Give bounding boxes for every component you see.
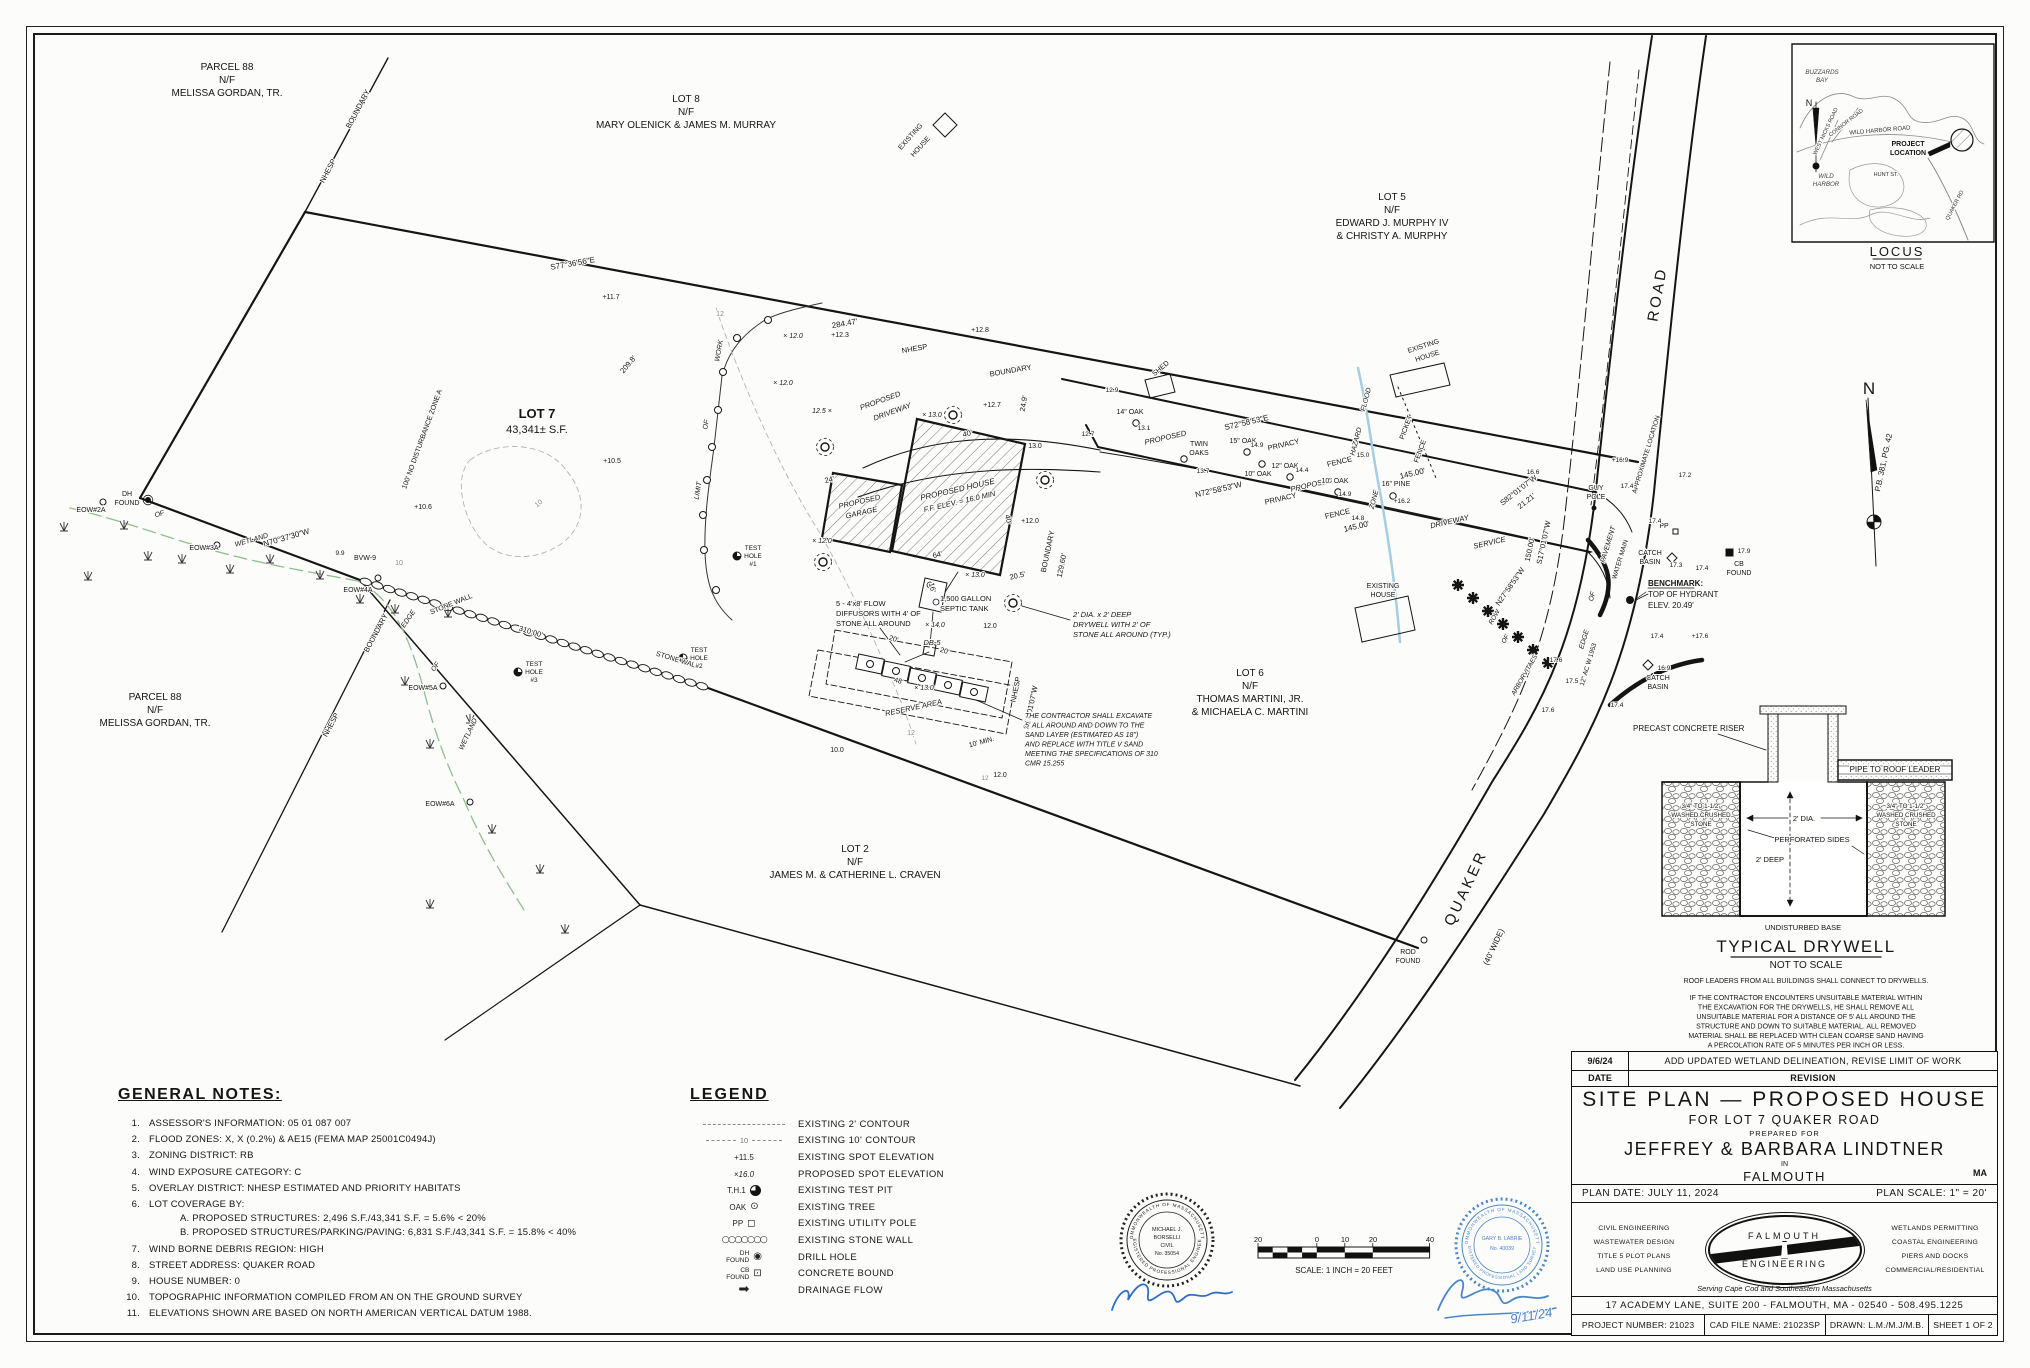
note-text: LOT COVERAGE BY: bbox=[149, 1199, 244, 1210]
plan-label: 14.9 bbox=[1251, 442, 1264, 449]
stone-wall-icon bbox=[417, 595, 430, 605]
plan-line bbox=[1768, 714, 1778, 782]
plan-line bbox=[1273, 1253, 1288, 1259]
sheet-number: SHEET 1 OF 2 bbox=[1929, 1315, 1997, 1335]
plan-label: S17°01'07"W bbox=[1535, 519, 1553, 565]
plan-circle bbox=[704, 477, 711, 484]
plan-circle bbox=[1421, 937, 1427, 943]
note-text: ELEVATIONS SHOWN ARE BASED ON NORTH AMER… bbox=[149, 1308, 532, 1319]
plan-circle bbox=[1009, 599, 1017, 607]
legend-symbol: ×16.0 bbox=[690, 1170, 798, 1179]
arborvitae-icon bbox=[1467, 592, 1479, 604]
plan-label: UNSUITABLE MATERIAL FOR A DISTANCE OF 5'… bbox=[1696, 1014, 1916, 1021]
wetland-grass-icon bbox=[401, 676, 409, 685]
plan-label: BOUNDARY bbox=[989, 362, 1032, 378]
plan-line bbox=[1145, 374, 1175, 398]
plan-circle bbox=[715, 407, 722, 414]
drill-hole-icon: ◉ bbox=[753, 1252, 762, 1262]
plan-label: OF bbox=[702, 419, 711, 431]
plan-label: OF bbox=[154, 510, 166, 520]
services-left-list: CIVIL ENGINEERINGWASTEWATER DESIGNTITLE … bbox=[1578, 1218, 1690, 1281]
legend-label: EXISTING 2' CONTOUR bbox=[798, 1119, 910, 1130]
plan-label: EDGE bbox=[400, 609, 417, 630]
plan-label: N/F bbox=[219, 75, 235, 86]
plan-label: & CHRISTY A. MURPHY bbox=[1337, 231, 1448, 242]
plan-label: STONE bbox=[1895, 821, 1916, 828]
wetland-grass-icon bbox=[84, 571, 92, 580]
note-number: 8. bbox=[118, 1260, 140, 1271]
engineer-seal-icon: COMMONWEALTH OF MASSACHUSETTS REGISTERED… bbox=[0, 0, 1205, 1275]
legend-item: CBFOUND⊡CONCRETE BOUND bbox=[690, 1265, 1120, 1282]
plan-circle bbox=[734, 335, 741, 342]
plan-label: HOUSE bbox=[1371, 592, 1396, 599]
plan-circle bbox=[467, 799, 473, 805]
plan-label: PROJECT bbox=[1891, 141, 1925, 148]
note-number: 10. bbox=[118, 1292, 140, 1303]
legend-item: ➡DRAINAGE FLOW bbox=[690, 1282, 1120, 1299]
plan-label: N/F bbox=[847, 857, 863, 868]
wetland-grass-icon bbox=[561, 924, 569, 933]
plan-label: 43,341± S.F. bbox=[506, 424, 568, 436]
plan-circle bbox=[713, 587, 720, 594]
revision-header-row: DATE REVISION bbox=[1572, 1071, 1997, 1087]
stone-wall-icon bbox=[556, 638, 569, 648]
note-text: B. PROPOSED STRUCTURES/PARKING/PAVING: 6… bbox=[180, 1227, 576, 1238]
drainage-flow-icon: ➡ bbox=[739, 1285, 750, 1295]
plan-label: MATERIAL SHALL BE REPLACED WITH CLEAN CO… bbox=[1688, 1033, 1923, 1040]
plan-label: PARCEL 88 bbox=[201, 62, 254, 73]
legend-item: EXISTING 2' CONTOUR bbox=[690, 1116, 1120, 1133]
plan-label: TYPICAL DRYWELL bbox=[1716, 937, 1895, 956]
plan-label: LOCATION bbox=[1890, 150, 1926, 157]
plan-label: PAVEMENT bbox=[1600, 525, 1618, 564]
plan-label: N/F bbox=[1242, 681, 1258, 692]
plan-label: +12.8 bbox=[971, 327, 989, 334]
note-number: 11. bbox=[118, 1308, 140, 1319]
wetland-grass-icon bbox=[536, 864, 544, 873]
plan-label: × 13.0 bbox=[922, 412, 942, 419]
legend-label: EXISTING 10' CONTOUR bbox=[798, 1135, 916, 1146]
plan-label: HOLE bbox=[690, 655, 708, 662]
plan-label: No. 40039 bbox=[1490, 1246, 1514, 1252]
plan-label: × 12.0 bbox=[773, 380, 793, 387]
plan-label: LOT 5 bbox=[1378, 192, 1406, 203]
plan-label: LIMIT bbox=[694, 481, 704, 501]
note-number: 9. bbox=[118, 1276, 140, 1287]
plan-label: 17.4 bbox=[1649, 518, 1662, 525]
plan-label: N bbox=[1863, 379, 1875, 398]
revision-entry-row: 9/6/24 ADD UPDATED WETLAND DELINEATION, … bbox=[1572, 1052, 1997, 1071]
plan-label: BOUNDARY bbox=[344, 88, 372, 130]
in-label: IN bbox=[1781, 1161, 1788, 1168]
plan-label: 14" OAK bbox=[1117, 409, 1144, 416]
plan-label: 10 bbox=[1341, 1235, 1349, 1244]
plan-label: GARY B. LABRIE bbox=[1482, 1236, 1523, 1242]
plan-line bbox=[1355, 596, 1415, 642]
plan-line bbox=[1472, 62, 1610, 790]
plan-label: × 14.0 bbox=[925, 622, 945, 629]
revision-date: 9/6/24 bbox=[1572, 1052, 1629, 1070]
note-text: ASSESSOR'S INFORMATION: 05 01 087 007 bbox=[149, 1118, 351, 1129]
stone-wall-icon bbox=[614, 656, 627, 666]
legend-item: DHFOUND◉DRILL HOLE bbox=[690, 1249, 1120, 1266]
surveyor-seal-arc-top: COMMONWEALTH OF MASSACHUSETTS bbox=[0, 0, 1540, 1245]
plan-label: × 12.0 bbox=[812, 538, 832, 545]
plan-label: NHESP bbox=[321, 711, 341, 738]
plan-label: EXISTING bbox=[1367, 583, 1400, 590]
wetland-grass-icon bbox=[316, 570, 324, 579]
legend-symbol: PP◻ bbox=[690, 1219, 798, 1229]
legend-item: 10EXISTING 10' CONTOUR bbox=[690, 1133, 1120, 1150]
plan-label: 20' bbox=[888, 635, 899, 644]
plan-label: 17.4 bbox=[1611, 702, 1624, 709]
note-number: 4. bbox=[118, 1167, 140, 1178]
plan-label: 17.5 bbox=[1566, 678, 1579, 685]
plan-label: LOT 7 bbox=[519, 406, 556, 421]
plan-label: HARBOR bbox=[1813, 181, 1840, 188]
plan-label: P.B. 381, PG. 42 bbox=[1873, 432, 1894, 492]
logo-bottom-text: ENGINEERING bbox=[1742, 1259, 1827, 1269]
revision-column-label: REVISION bbox=[1629, 1071, 1997, 1086]
legend-symbol: ○○○○○○○ bbox=[690, 1235, 798, 1245]
plan-label: S77°36'56"E bbox=[550, 255, 596, 272]
plan-label: 100' NO DISTURBANCE ZONE A bbox=[401, 389, 444, 491]
legend-symbol: DHFOUND◉ bbox=[690, 1250, 798, 1264]
plan-label: NHESP bbox=[1008, 676, 1022, 703]
plan-circle bbox=[765, 317, 772, 324]
plan-circle bbox=[720, 369, 727, 376]
firm-address-row: 17 ACADEMY LANE, SUITE 200 - FALMOUTH, M… bbox=[1572, 1297, 1997, 1316]
plan-label: PERFORATED SIDES bbox=[1774, 835, 1849, 844]
plan-label: #2 bbox=[695, 663, 703, 670]
flow-diffusor-box bbox=[934, 675, 963, 695]
plan-label: 3/4" TO 1-1/2" bbox=[1682, 803, 1721, 810]
stone-wall-icon bbox=[382, 584, 395, 594]
plan-label: 14.9 bbox=[1339, 491, 1352, 498]
plan-label: HOLE bbox=[525, 669, 543, 676]
legend-label: DRILL HOLE bbox=[798, 1252, 857, 1263]
legend-symbol: 10 bbox=[690, 1136, 798, 1145]
stone-wall-icon bbox=[475, 613, 488, 623]
plan-label: 2' DIA. x 2' DEEP bbox=[1072, 610, 1131, 619]
note-number: 3. bbox=[118, 1150, 140, 1161]
legend-symbol: CBFOUND⊡ bbox=[690, 1267, 798, 1281]
cad-file-name: CAD FILE NAME: 21023SP bbox=[1705, 1315, 1825, 1335]
svg-text:COMMONWEALTH OF MASSACHUSETTS: COMMONWEALTH OF MASSACHUSETTS bbox=[0, 0, 1540, 1245]
note-item: 4.WIND EXPOSURE CATEGORY: C bbox=[118, 1167, 703, 1178]
plan-circle bbox=[440, 683, 446, 689]
stone-wall-icon bbox=[661, 670, 674, 680]
plan-line bbox=[1373, 1247, 1430, 1253]
plan-label: 12.0 bbox=[993, 772, 1007, 779]
general-notes: GENERAL NOTES: 1.ASSESSOR'S INFORMATION:… bbox=[118, 1086, 703, 1324]
plan-label: 16.6 bbox=[1527, 469, 1540, 476]
svg-text:COMMONWEALTH OF MASSACHUSETTS: COMMONWEALTH OF MASSACHUSETTS bbox=[0, 0, 1205, 1240]
plan-label: 12.9 bbox=[1106, 387, 1119, 394]
legend-symbol: OAK⊙ bbox=[690, 1202, 798, 1212]
plan-label: 10' MIN. bbox=[968, 736, 995, 749]
stone-wall-icon bbox=[672, 674, 685, 684]
wetland-grass-icon bbox=[426, 739, 434, 748]
date-column-label: DATE bbox=[1572, 1071, 1629, 1086]
note-text: STREET ADDRESS: QUAKER ROAD bbox=[149, 1260, 315, 1271]
plan-circle bbox=[1626, 596, 1634, 604]
plan-label: 20 bbox=[1254, 1235, 1262, 1244]
plan-label: GUY bbox=[1588, 485, 1604, 492]
plan-label: WORK bbox=[714, 339, 725, 362]
plan-line bbox=[1258, 1247, 1273, 1253]
plan-label: 17.6 bbox=[1550, 657, 1563, 664]
plan-label: 13.0 bbox=[1028, 443, 1042, 450]
plan-label: 17.3 bbox=[1670, 562, 1683, 569]
note-number: 1. bbox=[118, 1118, 140, 1129]
plan-label: 10" OAK bbox=[1322, 478, 1349, 485]
plan-label: DIFFUSORS WITH 4' OF bbox=[836, 609, 921, 618]
services-right-list: WETLANDS PERMITTINGCOASTAL ENGINEERINGPI… bbox=[1879, 1218, 1991, 1281]
plan-label: CB bbox=[1734, 561, 1744, 568]
plan-label: SHED bbox=[1151, 360, 1170, 378]
concrete-bound-icon: ⊡ bbox=[753, 1269, 761, 1279]
plan-label: 10 bbox=[534, 499, 545, 509]
plan-line bbox=[1869, 208, 1926, 237]
note-item: 3.ZONING DISTRICT: RB bbox=[118, 1150, 703, 1161]
plan-line bbox=[445, 905, 640, 1040]
legend-item: +11.5EXISTING SPOT ELEVATION bbox=[690, 1149, 1120, 1166]
plan-line bbox=[1345, 1253, 1373, 1259]
plan-label: FOUND bbox=[1727, 570, 1752, 577]
note-text: ZONING DISTRICT: RB bbox=[149, 1150, 254, 1161]
note-number: 6. bbox=[118, 1199, 140, 1210]
plan-label: TEST bbox=[745, 545, 762, 552]
plan-label: PRIVACY bbox=[1267, 437, 1301, 453]
plan-label: JAMES M. & CATHERINE L. CRAVEN bbox=[769, 870, 940, 881]
plan-circle bbox=[1951, 129, 1973, 151]
note-text: FLOOD ZONES: X, X (0.2%) & AE15 (FEMA MA… bbox=[149, 1134, 436, 1145]
plan-label: FENCE bbox=[1326, 454, 1353, 468]
plan-label: 145.00' bbox=[1399, 466, 1427, 481]
wetland-grass-icon bbox=[226, 564, 234, 573]
plan-label: OF bbox=[1500, 633, 1511, 645]
plan-label: 9.9 bbox=[335, 550, 344, 557]
plan-label: BVW-9 bbox=[354, 555, 376, 562]
utility-pole-icon: ◻ bbox=[747, 1219, 755, 1229]
note-item: 6.LOT COVERAGE BY: bbox=[118, 1199, 703, 1210]
plan-label: OAKS bbox=[1189, 450, 1209, 457]
plan-label: 3/4" TO 1-1/2" bbox=[1887, 803, 1926, 810]
plan-circle bbox=[1181, 456, 1187, 462]
plan-label: 20 bbox=[1369, 1235, 1377, 1244]
drawing-title-area: SITE PLAN — PROPOSED HOUSE FOR LOT 7 QUA… bbox=[1572, 1087, 1997, 1185]
title-block: 9/6/24 ADD UPDATED WETLAND DELINEATION, … bbox=[1571, 1051, 1998, 1336]
plan-label: 12 bbox=[907, 730, 915, 737]
legend: LEGEND EXISTING 2' CONTOUR10EXISTING 10'… bbox=[690, 1086, 1120, 1299]
plan-label: OF bbox=[1588, 590, 1598, 602]
plan-label: N70°37'30"W bbox=[262, 527, 311, 549]
plan-label: MEETING THE SPECIFICATIONS OF 310 bbox=[1025, 751, 1158, 758]
plan-label: FOUND bbox=[115, 500, 140, 507]
note-text: A. PROPOSED STRUCTURES: 2,496 S.F./43,34… bbox=[180, 1213, 486, 1224]
plan-label: 12.5 × bbox=[812, 408, 832, 415]
firm-tagline: Serving Cape Cod and Southeastern Massac… bbox=[1572, 1284, 1997, 1293]
note-item: 10.TOPOGRAPHIC INFORMATION COMPILED FROM… bbox=[118, 1292, 703, 1303]
wetland-grass-icon bbox=[144, 551, 152, 560]
legend-symbol: +11.5 bbox=[690, 1153, 798, 1162]
plan-label: +12.3 bbox=[831, 332, 849, 339]
stone-wall-icon bbox=[568, 642, 581, 652]
plan-label: BENCHMARK: bbox=[1648, 579, 1703, 588]
plan-label: N bbox=[1806, 98, 1813, 108]
plan-line bbox=[1591, 70, 1639, 505]
plan-label: 24.9' bbox=[1018, 394, 1030, 412]
plan-line bbox=[1928, 158, 1968, 240]
plan-label: NOT TO SCALE bbox=[1870, 262, 1925, 271]
plan-line bbox=[905, 652, 929, 662]
plan-label: THE EXCAVATION FOR THE DRYWELLS, HE SHAL… bbox=[1698, 1005, 1914, 1012]
plan-line bbox=[1828, 714, 1838, 782]
plan-label: 10" OAK bbox=[1245, 471, 1272, 478]
plan-circle bbox=[100, 499, 106, 505]
plan-line bbox=[1760, 706, 1846, 714]
wetland-grass-icon bbox=[60, 522, 68, 531]
note-item: 2.FLOOD ZONES: X, X (0.2%) & AE15 (FEMA … bbox=[118, 1134, 703, 1145]
plan-label: MELISSA GORDAN, TR. bbox=[172, 88, 283, 99]
plan-label: EOW#3A bbox=[189, 545, 219, 552]
note-number bbox=[149, 1213, 171, 1224]
plan-label: 12.7 bbox=[1082, 431, 1095, 438]
stone-wall-icon bbox=[545, 634, 558, 644]
logo-top-text: FALMOUTH bbox=[1748, 1231, 1821, 1241]
legend-label: EXISTING SPOT ELEVATION bbox=[798, 1152, 934, 1163]
legend-symbol: ➡ bbox=[690, 1285, 798, 1295]
plan-line bbox=[1302, 1253, 1317, 1259]
plan-label: 14.4 bbox=[1296, 467, 1309, 474]
plan-label: EOW#5A bbox=[408, 685, 438, 692]
plan-label: BUZZARDS bbox=[1805, 69, 1839, 76]
plan-label: × 13.0 bbox=[914, 685, 934, 692]
note-item: B. PROPOSED STRUCTURES/PARKING/PAVING: 6… bbox=[149, 1227, 703, 1238]
plan-label: 40 bbox=[1426, 1235, 1434, 1244]
plan-line bbox=[1438, 1280, 1548, 1310]
plan-label: 20' bbox=[939, 647, 950, 656]
note-item: 5.OVERLAY DISTRICT: NHESP ESTIMATED AND … bbox=[118, 1183, 703, 1194]
stone-wall-icon bbox=[696, 681, 709, 691]
prepared-for-label: PREPARED FOR bbox=[1749, 1129, 1820, 1138]
plan-label: FENCE bbox=[1413, 439, 1428, 464]
plan-label: 17.4 bbox=[1621, 483, 1634, 490]
plan-label: CIVIL bbox=[1161, 1243, 1174, 1249]
service-item: COMMERCIAL/RESIDENTIAL bbox=[1879, 1267, 1991, 1274]
note-text: OVERLAY DISTRICT: NHESP ESTIMATED AND PR… bbox=[149, 1183, 461, 1194]
plan-line bbox=[1838, 774, 1952, 780]
plan-label: N72°58'53"W bbox=[1194, 480, 1243, 500]
plan-line bbox=[933, 113, 957, 137]
plan-label: 17.6 bbox=[1542, 707, 1555, 714]
plan-label: WILD bbox=[1818, 173, 1834, 180]
legend-item: T.H.1EXISTING TEST PIT bbox=[690, 1182, 1120, 1199]
plan-label: 284.47' bbox=[831, 317, 859, 330]
legend-symbol: T.H.1 bbox=[690, 1185, 798, 1196]
plan-line bbox=[1849, 164, 1904, 207]
engineer-seal-arc-top: COMMONWEALTH OF MASSACHUSETTS bbox=[0, 0, 1205, 1240]
plan-circle bbox=[709, 444, 716, 451]
stone-wall-icon bbox=[406, 591, 419, 601]
wetland-grass-icon bbox=[120, 520, 128, 529]
stone-wall-icon bbox=[591, 649, 604, 659]
stone-wall-icon bbox=[580, 645, 593, 655]
stone-wall-icon bbox=[649, 667, 662, 677]
plan-circle bbox=[1474, 1217, 1530, 1273]
plan-label: FENCE bbox=[1324, 506, 1351, 520]
plan-label: AND REPLACE WITH TITLE V SAND bbox=[1024, 742, 1143, 749]
plan-label: WASHED CRUSHED bbox=[1671, 812, 1731, 819]
plan-label: EDGE bbox=[1578, 629, 1591, 650]
stone-wall-icon: ○○○○○○○ bbox=[722, 1235, 766, 1245]
plan-label: ROD bbox=[1400, 949, 1416, 956]
plan-line bbox=[305, 212, 1638, 462]
plan-label: PARCEL 88 bbox=[129, 692, 182, 703]
plan-label: LOT 2 bbox=[841, 844, 869, 855]
plan-line bbox=[305, 58, 388, 212]
stone-wall-icon bbox=[394, 588, 407, 598]
plan-label: 17.4 bbox=[1651, 633, 1664, 640]
general-notes-list: 1.ASSESSOR'S INFORMATION: 05 01 087 0072… bbox=[118, 1118, 703, 1320]
plan-circle bbox=[817, 439, 834, 456]
plan-line bbox=[1287, 1247, 1302, 1253]
plan-label: N/F bbox=[147, 705, 163, 716]
service-item: LAND USE PLANNING bbox=[1578, 1267, 1690, 1274]
plan-label: LOT 6 bbox=[1236, 668, 1264, 679]
plan-label: ROOF LEADERS FROM ALL BUILDINGS SHALL CO… bbox=[1684, 978, 1929, 985]
stone-wall-icon bbox=[464, 609, 477, 619]
plan-label: +16.2 bbox=[1394, 498, 1411, 505]
plan-label: 17.9 bbox=[1738, 548, 1751, 555]
plan-label: SCALE: 1 INCH = 20 FEET bbox=[1295, 1266, 1393, 1275]
legend-label: EXISTING STONE WALL bbox=[798, 1235, 913, 1246]
stone-wall-icon bbox=[684, 678, 697, 688]
plan-line bbox=[640, 905, 1300, 1086]
plan-label: STRUCTURE AND DOWN TO SUITABLE MATERIAL.… bbox=[1696, 1024, 1916, 1031]
plan-label: BOUNDARY bbox=[1039, 530, 1057, 573]
plan-label: RESERVE AREA bbox=[884, 697, 943, 718]
plan-label: +10.6 bbox=[414, 504, 432, 511]
legend-label: EXISTING UTILITY POLE bbox=[798, 1218, 917, 1229]
plan-label: DB-5 bbox=[923, 638, 941, 647]
plan-label: ELEV. 20.49' bbox=[1648, 601, 1694, 610]
wetland-grass-icon bbox=[488, 824, 496, 833]
plan-label: +10.5 bbox=[603, 458, 621, 465]
plan-scale: PLAN SCALE: 1" = 20' bbox=[1876, 1188, 1987, 1199]
plan-line bbox=[140, 212, 305, 498]
plan-label: +11.7 bbox=[602, 294, 619, 301]
firm-address: 17 ACADEMY LANE, SUITE 200 - FALMOUTH, M… bbox=[1606, 1300, 1964, 1311]
plan-circle bbox=[1592, 506, 1597, 511]
plan-circle bbox=[949, 411, 957, 419]
drawing-title: SITE PLAN — PROPOSED HOUSE bbox=[1582, 1088, 1987, 1112]
service-item: CIVIL ENGINEERING bbox=[1578, 1225, 1690, 1232]
plan-label: CMR 15.255 bbox=[1025, 761, 1064, 768]
plan-label: 9/11/24 bbox=[1509, 1304, 1553, 1326]
plan-label: WASHED CRUSHED bbox=[1876, 812, 1936, 819]
service-item: WASTEWATER DESIGN bbox=[1578, 1239, 1690, 1246]
legend-label: DRAINAGE FLOW bbox=[798, 1285, 883, 1296]
plan-label: EDWARD J. MURPHY IV bbox=[1336, 218, 1449, 229]
service-item: WETLANDS PERMITTING bbox=[1879, 1225, 1991, 1232]
drawing-subtitle: FOR LOT 7 QUAKER ROAD bbox=[1689, 1113, 1881, 1127]
plan-label: BAY bbox=[1816, 77, 1829, 84]
plan-label: NHESP bbox=[318, 157, 338, 184]
state-label: MA bbox=[1973, 1168, 1987, 1178]
plan-label: TEST bbox=[691, 647, 708, 654]
